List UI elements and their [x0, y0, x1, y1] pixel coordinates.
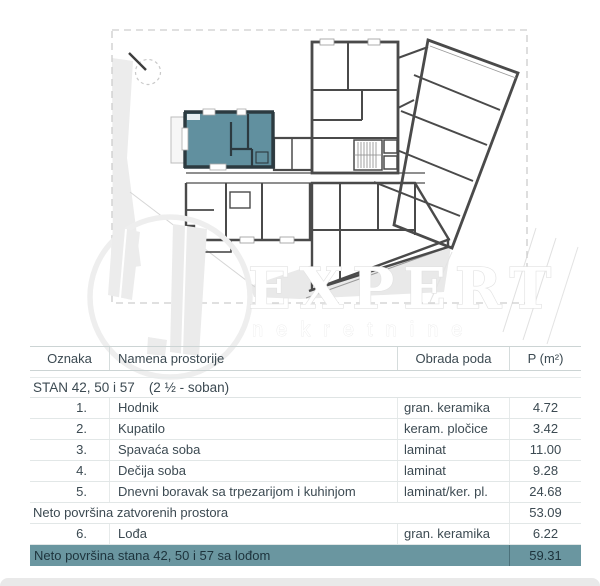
room-name: Dnevni boravak sa trpezarijom i kuhinjom: [110, 482, 398, 502]
north-indicator-icon: [129, 53, 161, 85]
table-row: 2. Kupatilo keram. pločice 3.42: [30, 419, 581, 440]
subtotal-label: Neto površina zatvorenih prostora: [30, 503, 510, 523]
corridor-lines: [186, 173, 425, 183]
floor-finish: keram. pločice: [398, 419, 510, 439]
apartment-title: STAN 42, 50 i 57: [33, 378, 135, 398]
row-number: 3.: [30, 440, 110, 460]
room-area: 9.28: [510, 461, 581, 481]
total-row: Neto površina stana 42, 50 i 57 sa lođom…: [30, 545, 581, 566]
floor-finish: laminat: [398, 461, 510, 481]
subtotal-area: 53.09: [510, 503, 581, 523]
table-row: 4. Dečija soba laminat 9.28: [30, 461, 581, 482]
header-area: P (m²): [510, 347, 581, 370]
header-namena: Namena prostorije: [110, 347, 398, 370]
watermark-buildings-icon: [108, 224, 207, 356]
row-number: 5.: [30, 482, 110, 502]
apartment-type: (2 ½ - soban): [149, 378, 229, 398]
row-number: 2.: [30, 419, 110, 439]
row-number: 6.: [30, 524, 110, 544]
page-bottom-edge: [0, 578, 600, 586]
total-label: Neto površina stana 42, 50 i 57 sa lođom: [30, 545, 510, 566]
room-name: Lođa: [110, 524, 398, 544]
table-row-loggia: 6. Lođa gran. keramika 6.22: [30, 524, 581, 545]
watermark-title: EXPERT: [248, 256, 560, 322]
room-area: 24.68: [510, 482, 581, 502]
room-name: Kupatilo: [110, 419, 398, 439]
area-table: Oznaka Namena prostorije Obrada poda P (…: [30, 346, 581, 566]
header-oznaka: Oznaka: [30, 347, 110, 370]
floor-finish: gran. keramika: [398, 398, 510, 418]
room-area: 11.00: [510, 440, 581, 460]
header-obrada: Obrada poda: [398, 347, 510, 370]
room-area: 6.22: [510, 524, 581, 544]
room-name: Dečija soba: [110, 461, 398, 481]
highlighted-apartment: [182, 109, 274, 170]
floor-plan-document: EXPERT nekretnine Oznaka Namena prostori…: [0, 0, 600, 586]
room-name: Spavaća soba: [110, 440, 398, 460]
table-row: 5. Dnevni boravak sa trpezarijom i kuhin…: [30, 482, 581, 503]
row-number: 1.: [30, 398, 110, 418]
row-number: 4.: [30, 461, 110, 481]
room-name: Hodnik: [110, 398, 398, 418]
section-title-row: STAN 42, 50 i 57 (2 ½ - soban): [30, 377, 581, 398]
total-area: 59.31: [510, 545, 581, 566]
floor-finish: gran. keramika: [398, 524, 510, 544]
watermark-subtitle: nekretnine: [252, 319, 475, 341]
table-row: 1. Hodnik gran. keramika 4.72: [30, 398, 581, 419]
subtotal-row: Neto površina zatvorenih prostora 53.09: [30, 503, 581, 524]
table-header-row: Oznaka Namena prostorije Obrada poda P (…: [30, 346, 581, 371]
table-row: 3. Spavaća soba laminat 11.00: [30, 440, 581, 461]
floor-finish: laminat: [398, 440, 510, 460]
room-area: 3.42: [510, 419, 581, 439]
floor-finish: laminat/ker. pl.: [398, 482, 510, 502]
room-area: 4.72: [510, 398, 581, 418]
